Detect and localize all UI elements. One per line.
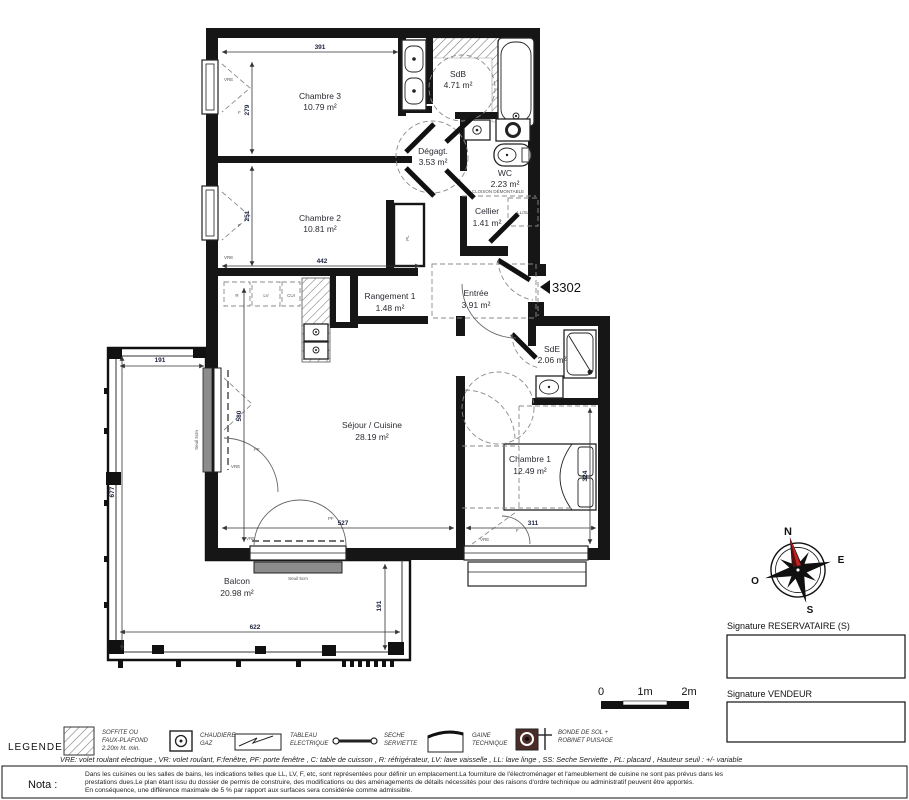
nota-label: Nota :: [28, 779, 57, 791]
vre-label-sejour-bottom: VRE: [246, 536, 255, 541]
seuil-label-left: Seuil 5cm: [194, 430, 199, 450]
signature-reservataire-label: Signature RESERVATAIRE (S): [727, 621, 850, 631]
ll-sl-label: LL/SL: [517, 210, 529, 215]
floor-drain-icon: [496, 119, 530, 141]
sde-basin-icon: [536, 376, 563, 398]
legend-chaudiere-line2: GAZ: [200, 741, 213, 747]
balcony-railing-posts: [104, 349, 404, 668]
cloison-demontable-label: CLOISON DÉMONTABLE: [472, 188, 524, 194]
room-entree-area: 3.91 m²: [462, 300, 491, 310]
chambre2-window: [202, 186, 218, 240]
entrance-door-leaf: [498, 260, 530, 280]
nota-block: Nota : Dans les cuisines ou les salles d…: [2, 766, 907, 798]
scale-2m-label: 2m: [681, 686, 696, 698]
bonde-swatch-icon: [516, 728, 552, 750]
dim-balcon-left: 677: [109, 486, 116, 497]
compass-south-label: S: [807, 605, 814, 616]
compass-west-label: O: [751, 576, 759, 587]
legend-gaine-line2: TECHNIQUE: [472, 741, 508, 747]
unit-number: 3302: [552, 280, 581, 295]
chambre1-door-arc: [465, 390, 515, 440]
room-sdb-area: 4.71 m²: [444, 80, 473, 90]
chambre3-window: [202, 60, 218, 114]
room-degagt-name: Dégagt.: [418, 146, 448, 156]
shower-icon: [564, 330, 596, 378]
room-wc-area: 2.23 m²: [491, 179, 520, 189]
gaine-swatch-icon: [428, 731, 463, 752]
room-chambre2-area: 10.81 m²: [303, 224, 337, 234]
balcony-outline: [104, 348, 410, 668]
room-chambre3-area: 10.79 m²: [303, 102, 337, 112]
legend-bonde-line2: ROBINET PUISAGE: [558, 738, 614, 744]
scale-1m-label: 1m: [637, 686, 652, 698]
compass-east-label: E: [838, 555, 845, 566]
seuil-label-bottom: Seuil 5cm: [288, 576, 308, 581]
signature-reservataire-box[interactable]: [727, 635, 905, 678]
legend-seche-line2: SERVIETTE: [384, 741, 418, 747]
wc-handbasin-icon: [494, 144, 531, 166]
fridge-label: R: [235, 293, 239, 298]
scale-bar: 0 1m 2m: [598, 686, 697, 709]
double-sink-vanity-icon: [402, 40, 426, 110]
vre-label-sejour-left: VRE: [231, 464, 240, 469]
room-chambre1-name: Chambre 1: [509, 454, 551, 464]
nota-line3: En conséquence, une différence maximale …: [85, 787, 412, 794]
sejour-bottom-window: [250, 546, 346, 573]
unit-arrow-icon: [540, 280, 550, 294]
compass-north-label: N: [784, 526, 792, 538]
scale-0-label: 0: [598, 686, 604, 698]
legend-abbreviations: VRE: volet roulant electrique , VR: vole…: [60, 755, 742, 764]
f-label-ch3: F: [238, 110, 241, 115]
seche-serviette-swatch-icon: [333, 738, 377, 744]
signature-blocks: Signature RESERVATAIRE (S) Signature VEN…: [727, 621, 905, 742]
floor-plan-page: 391 279 251 442 580 527 311 324 191 677 …: [0, 0, 909, 800]
room-entree-name: Entrée: [463, 288, 488, 298]
room-rangement-name: Rangement 1: [364, 291, 415, 301]
chambre2-door-leaf: [406, 168, 434, 196]
dim-ch2-width: 442: [317, 258, 328, 265]
room-cellier-area: 1.41 m²: [473, 218, 502, 228]
soffite-swatch-icon: [64, 727, 94, 755]
signature-vendeur-label: Signature VENDEUR: [727, 689, 813, 699]
dim-balcon-right: 191: [376, 600, 383, 611]
room-chambre1-area: 12.49 m²: [513, 466, 547, 476]
legend: LEGENDE SOFFITE OU FAUX-PLAFOND 2.20m ht…: [8, 727, 742, 764]
vre-label-ch2: VRE: [224, 255, 233, 260]
bathtub-icon: [498, 38, 534, 126]
wc-door-leaf: [446, 170, 474, 198]
dim-ch3-height: 279: [244, 104, 251, 115]
legend-soffite-line3: 2.20m ht. min.: [101, 746, 140, 752]
signature-vendeur-box[interactable]: [727, 702, 905, 742]
pf-label-left: PF: [254, 447, 260, 452]
compass-rose-icon: N E O S: [751, 526, 845, 616]
chambre1-turning-circle: [462, 372, 534, 444]
dim-balcon-top: 191: [155, 357, 166, 364]
vre-label-ch3: VRE: [224, 77, 233, 82]
dim-ch3-width: 391: [315, 44, 326, 51]
nota-line2: prestations dues.Le plan étant issu du d…: [85, 779, 694, 786]
legend-soffite-line1: SOFFITE OU: [102, 730, 139, 736]
sejour-left-window: [203, 368, 221, 472]
room-wc-name: WC: [498, 168, 512, 178]
legend-gaine-line1: GAINE: [472, 733, 492, 739]
room-degagt-area: 3.53 m²: [419, 157, 448, 167]
room-chambre3-name: Chambre 3: [299, 91, 341, 101]
dishwasher-label: LV: [263, 293, 268, 298]
dim-sejour-width: 527: [338, 520, 349, 527]
dim-ch1-width: 311: [528, 520, 539, 527]
room-balcon-name: Balcon: [224, 576, 250, 586]
legend-tableau-line1: TABLEAU: [290, 733, 318, 739]
legend-title: LEGENDE: [8, 742, 63, 753]
f-label-ch1: F: [516, 528, 519, 533]
chambre1-bottom-window: [464, 546, 588, 586]
room-sejour-area: 28.19 m²: [355, 432, 389, 442]
pf-label-bottom: PF: [328, 516, 334, 521]
legend-soffite-line2: FAUX-PLAFOND: [102, 738, 149, 744]
legend-tableau-line2: ELECTRIQUE: [290, 741, 329, 747]
room-sde-name: SdE: [544, 344, 560, 354]
room-balcon-area: 20.98 m²: [220, 588, 254, 598]
room-sde-area: 2.06 m²: [538, 355, 567, 365]
dim-ch1-height: 324: [582, 470, 589, 481]
room-sdb-name: SdB: [450, 69, 466, 79]
vre-label-ch1: VRE: [480, 537, 489, 542]
dim-sejour-height: 580: [236, 410, 243, 421]
room-chambre2-name: Chambre 2: [299, 213, 341, 223]
room-rangement-area: 1.48 m²: [376, 303, 405, 313]
cooktop-label: CUI: [287, 293, 295, 298]
cooktop-icon: [304, 324, 328, 359]
room-sejour-name: Séjour / Cuisine: [342, 420, 402, 430]
floor-plan-drawing: 391 279 251 442 580 527 311 324 191 677 …: [0, 0, 909, 800]
dim-ch2-height: 251: [244, 210, 251, 221]
legend-seche-line1: SECHE: [384, 733, 406, 739]
legend-bonde-line1: BONDE DE SOL +: [558, 730, 609, 736]
placard-icon: [394, 204, 424, 266]
dim-balcon-bottom: 622: [250, 624, 261, 631]
nota-line1: Dans les cuisines ou les salles de bains…: [85, 771, 724, 778]
tableau-swatch-icon: [235, 734, 281, 750]
legend-chaudiere-line1: CHAUDIERE: [200, 733, 236, 739]
f-label-ch2: F: [238, 223, 241, 228]
pl-label: PL: [405, 235, 410, 241]
room-cellier-name: Cellier: [475, 206, 499, 216]
